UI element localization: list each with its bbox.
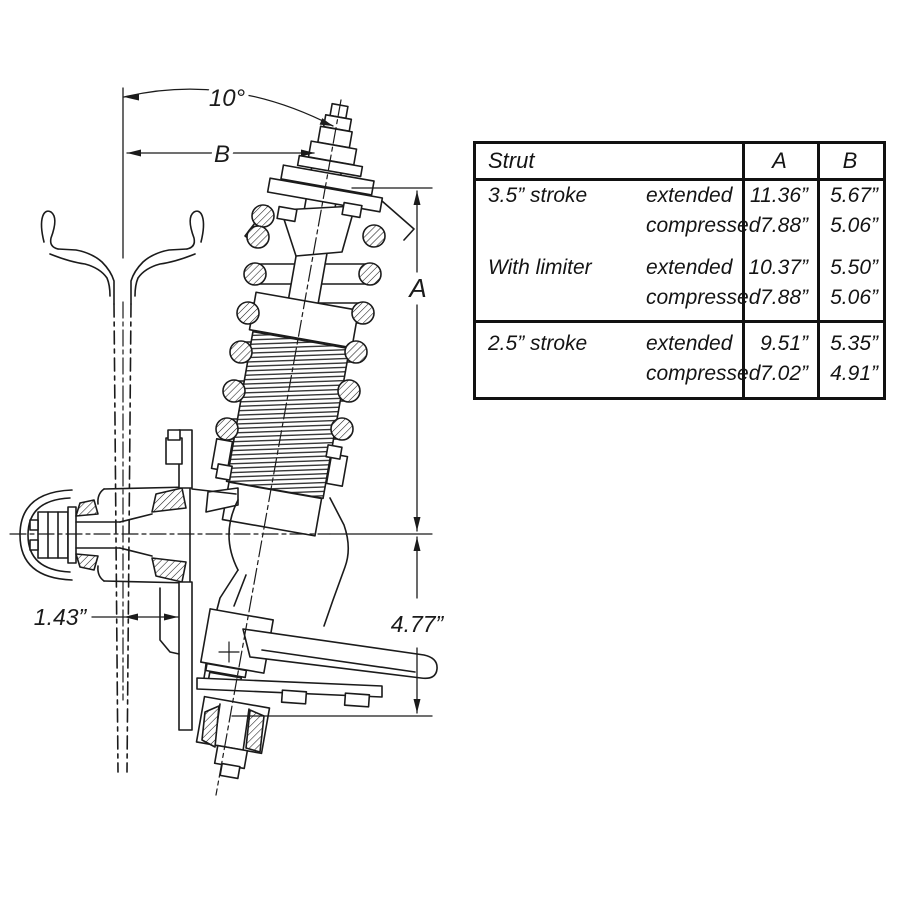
table-row: compressed 7.02” 4.91” [476, 359, 883, 389]
ball-joint [197, 697, 270, 779]
dim-477-label: 4.77” [391, 611, 445, 637]
strut-diagram-svg: 10° B A 4.77” [0, 0, 900, 900]
table-row: 2.5” stroke extended 9.51” 5.35” [476, 329, 883, 359]
value-a: 7.88” [742, 286, 817, 310]
value-a: 7.88” [742, 214, 817, 238]
table-row: 3.5” stroke extended 11.36” 5.67” [476, 181, 883, 211]
dimension-b: B [127, 141, 315, 168]
technical-drawing-page: 10° B A 4.77” [0, 0, 900, 900]
value-b: 5.06” [817, 214, 883, 238]
dimension-angle: 10° [124, 85, 333, 126]
row-label: 2.5” stroke [476, 332, 646, 356]
row-state: extended [646, 332, 742, 356]
table-section-1: 3.5” stroke extended 11.36” 5.67” compre… [476, 181, 883, 313]
dim-143-label: 1.43” [34, 604, 88, 630]
row-state: compressed [646, 362, 742, 386]
dim-a-label: A [407, 273, 426, 303]
table-header-row: Strut A B [476, 144, 883, 178]
value-a: 11.36” [742, 184, 817, 208]
angle-label: 10° [209, 85, 246, 112]
header-strut: Strut [476, 148, 742, 174]
header-col-a: A [742, 148, 817, 174]
table-row: compressed 7.88” 5.06” [476, 211, 883, 241]
table-row: compressed 7.88” 5.06” [476, 283, 883, 313]
row-label: 3.5” stroke [476, 184, 646, 208]
value-a: 9.51” [742, 332, 817, 356]
value-a: 7.02” [742, 362, 817, 386]
table-section-2: 2.5” stroke extended 9.51” 5.35” compres… [476, 323, 883, 389]
row-label: With limiter [476, 256, 646, 280]
spindle-hub [20, 430, 192, 730]
row-state: compressed [646, 214, 742, 238]
top-mount [245, 104, 414, 256]
value-a: 10.37” [742, 256, 817, 280]
header-col-b: B [817, 148, 883, 174]
value-b: 5.06” [817, 286, 883, 310]
value-b: 5.35” [817, 332, 883, 356]
value-b: 5.50” [817, 256, 883, 280]
row-state: extended [646, 256, 742, 280]
value-b: 4.91” [817, 362, 883, 386]
row-state: compressed [646, 286, 742, 310]
dim-b-label: B [214, 141, 230, 168]
dimension-offset: 1.43” [34, 604, 178, 630]
table-row: With limiter extended 10.37” 5.50” [476, 253, 883, 283]
row-state: extended [646, 184, 742, 208]
spec-table: Strut A B 3.5” stroke extended 11.36” 5.… [473, 141, 886, 400]
value-b: 5.67” [817, 184, 883, 208]
